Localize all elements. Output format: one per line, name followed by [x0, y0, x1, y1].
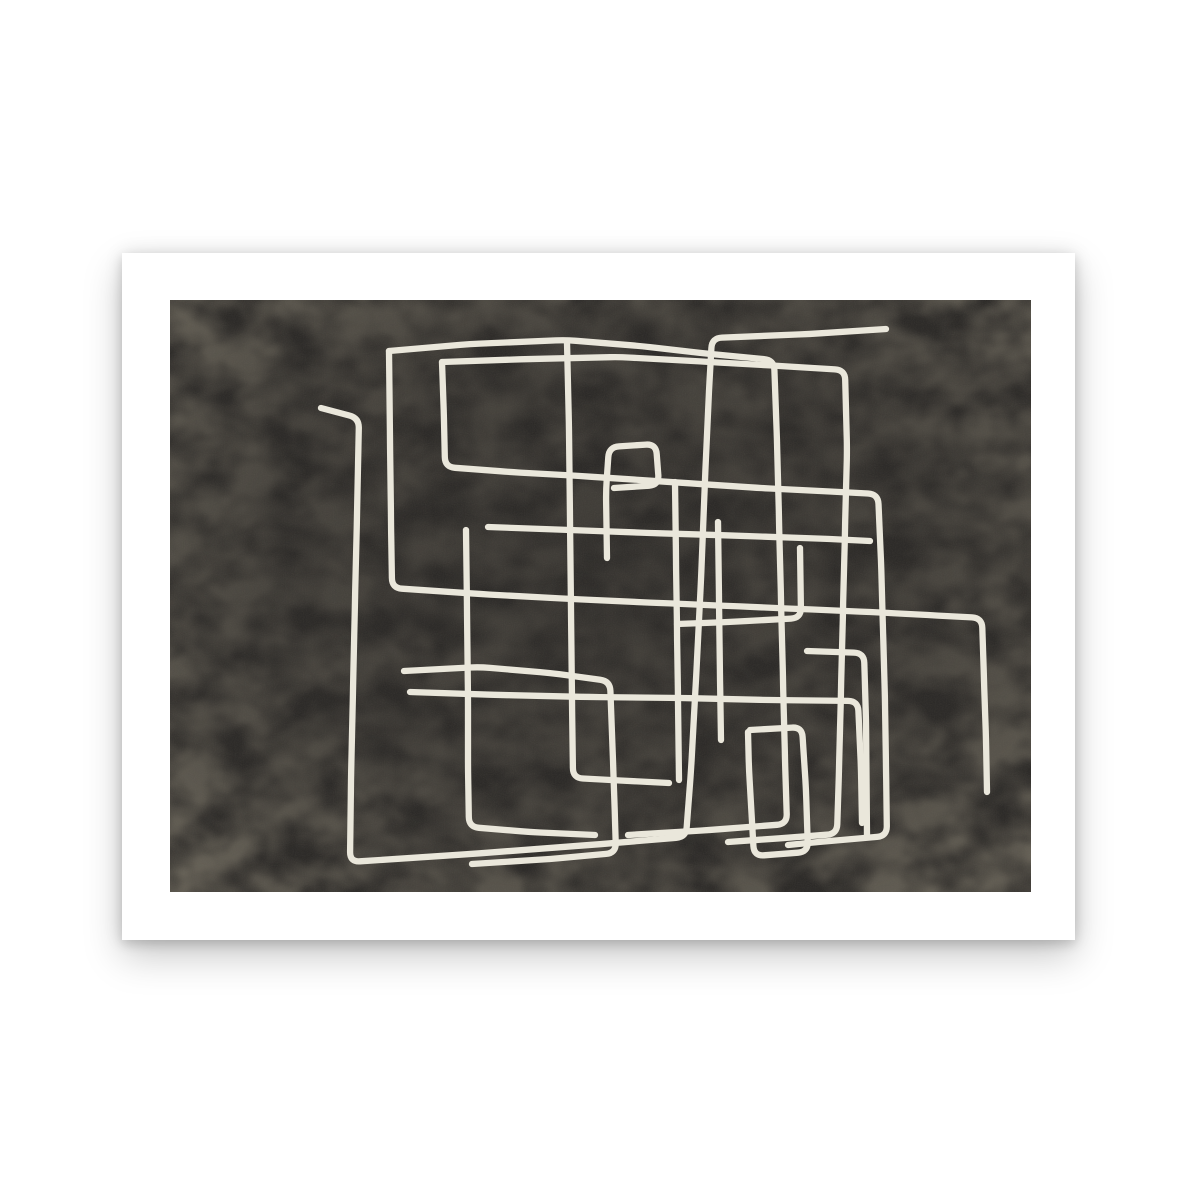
maze-stroke — [718, 522, 721, 740]
page-background — [0, 0, 1200, 1200]
maze-stroke — [675, 482, 679, 780]
artwork-frame — [170, 300, 1031, 892]
abstract-line-art — [170, 300, 1031, 892]
poster-sheet — [122, 253, 1075, 940]
artwork-texture-grain — [170, 300, 1031, 892]
